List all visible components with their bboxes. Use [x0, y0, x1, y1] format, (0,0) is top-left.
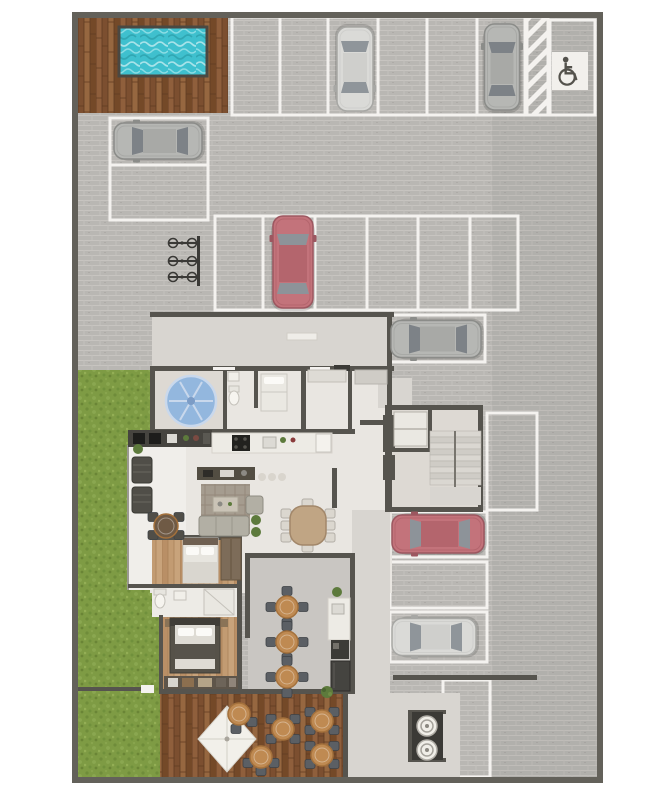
deck-plant: [321, 686, 333, 698]
car-gray-west: [114, 120, 205, 163]
bedroom2-bed: [165, 618, 228, 673]
outdoor-kitchen: [128, 430, 212, 447]
entry-bench: [287, 333, 317, 340]
dressing-room-bed: [261, 374, 287, 411]
car-red-east: [392, 512, 487, 557]
no-parking-hatch: [527, 17, 548, 115]
kitchen-counter: [212, 433, 332, 453]
bedroom2-wardrobe: [164, 676, 238, 689]
lounge-kitchenette: [328, 587, 350, 691]
hot-tub: [166, 376, 216, 426]
laundry-machines: [412, 712, 443, 760]
bedroom1-bed: [183, 538, 218, 583]
car-red-middle: [270, 216, 317, 311]
elevator: [394, 412, 427, 446]
entry-walkway: [152, 316, 392, 368]
swimming-pool: [119, 27, 207, 76]
car-white-southeast: [392, 615, 479, 659]
floor-plan-svg: [0, 0, 667, 800]
car-gray-east: [391, 317, 484, 361]
accessible-parking-sign: [552, 52, 588, 90]
car-white-north: [334, 24, 377, 111]
bathroom1-fixtures: [228, 372, 239, 405]
garden-strip-lower: [77, 588, 162, 778]
terrace-table: [148, 513, 184, 540]
floor-plan: [0, 0, 667, 800]
car-gray-northeast: [481, 24, 523, 113]
bedroom1-wardrobe: [221, 538, 241, 580]
east-pavement-shade: [492, 17, 597, 777]
